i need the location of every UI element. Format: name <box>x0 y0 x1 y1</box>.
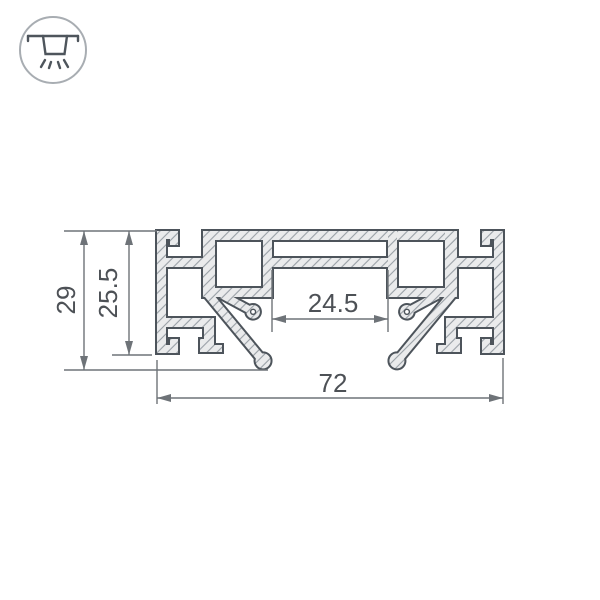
dimension-label-total-height: 29 <box>51 286 81 315</box>
icon-circle <box>20 17 86 83</box>
dimension-label-body-height: 25.5 <box>93 268 123 319</box>
technical-drawing-page: 29 25.5 24.5 72 <box>0 0 600 600</box>
technical-drawing-canvas: 29 25.5 24.5 72 <box>0 0 600 600</box>
dimension-label-channel-width: 24.5 <box>308 288 359 318</box>
dimension-label-total-width: 72 <box>319 368 348 398</box>
recessed-ceiling-light-icon <box>20 17 86 83</box>
